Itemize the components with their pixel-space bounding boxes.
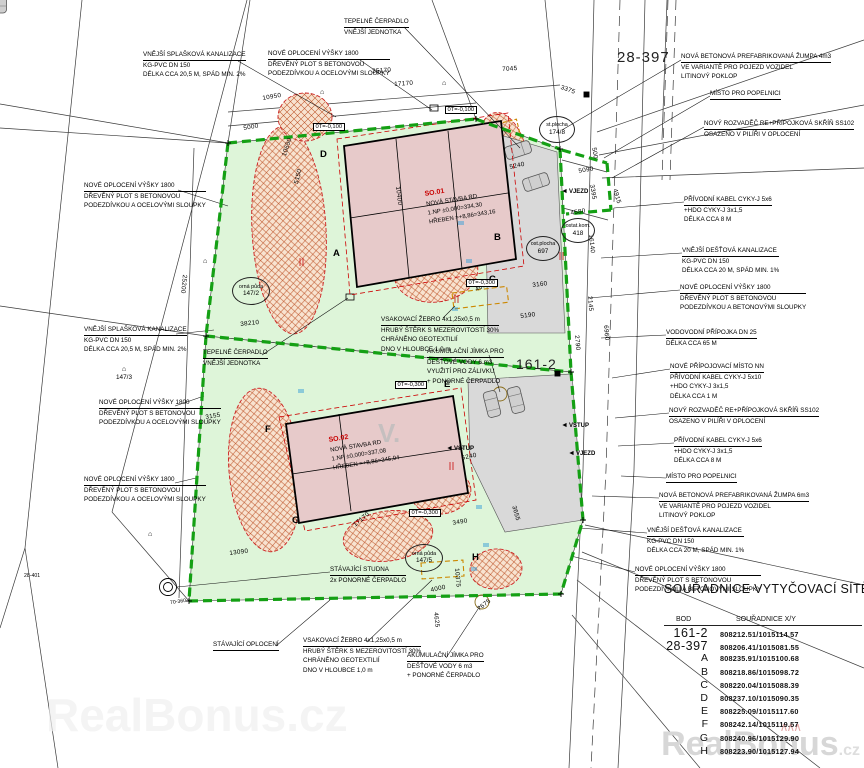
triangle-left-icon: ◄ [561, 188, 568, 195]
parcel-label-174-8: st.plocha174/8 [539, 116, 575, 143]
annotation-tepelne-cerpadlo-left: TEPELNÉ ČERPADLOVNĚJŠÍ JEDNOTKA [203, 348, 268, 368]
triangle-left-icon: ◄ [568, 450, 575, 457]
corner-letter-d: D [320, 149, 327, 160]
annotation-popelnice-2: MÍSTO PRO POPELNICI [666, 472, 737, 483]
house-mark-icon: ⌂ [320, 89, 324, 96]
dim-label: 6960 [602, 325, 610, 341]
house-mark-icon: ⌂ [148, 531, 152, 538]
annotation-vsakovaci-zebro-2: VSAKOVACÍ ŽEBRO 4x1,25x0,5 mHRUBÝ ŠTĚRK … [303, 636, 421, 675]
annotation-splaskova-left: VNĚJŠÍ SPLAŠKOVÁ KANALIZACEKG-PVC DN 150… [84, 325, 187, 355]
parcel-label-697: ost.plocha697 [526, 236, 560, 261]
elevation-box: 0T=-0,300 [395, 381, 427, 389]
annotation-destova-1: VNĚJŠÍ DEŠŤOVÁ KANALIZACEKG-PVC DN 150DÉ… [682, 246, 779, 276]
elevation-box: 0T=-0,300 [466, 279, 498, 287]
house-mark-icon: ⌂ [203, 258, 207, 265]
annotation-popelnice-top: MÍSTO PRO POPELNICI [710, 89, 781, 100]
table-row: D808237.10/1015090.35 [664, 692, 862, 705]
parcel-label-147-5: orná půda147/5 [405, 544, 443, 572]
annotation-oploceni-beton-1: NOVÉ OPLOCENÍ VÝŠKY 1800DŘEVĚNÝ PLOT S B… [680, 283, 806, 313]
elevation-box: 0T=-0,300 [409, 509, 441, 517]
annotation-jimka-1: AKUMULAČNÍ JÍMKA PRODEŠŤOVÉ VODY 6 m3VYU… [427, 347, 504, 386]
access-label-vjezd: ◄VJEZD [561, 188, 588, 195]
annotation-rozvadec-top: NOVÝ ROZVADĚČ RE+PŘÍPOJKOVÁ SKŘÍŇ SS102O… [704, 119, 854, 139]
table-row: H808223.90/1015127.94 [664, 745, 862, 758]
annotation-oploceni-top: NOVÉ OPLOCENÍ VÝŠKY 1800DŘEVĚNÝ PLOT S B… [268, 49, 390, 79]
corner-letter-a: A [333, 248, 340, 259]
corner-letter-b: B [494, 232, 501, 243]
dim-label: 4625 [432, 612, 441, 628]
annotation-stavajici-oploceni: STÁVAJÍCÍ OPLOCENÍ [213, 640, 279, 651]
annotation-oploceni-left-1: NOVÉ OPLOCENÍ VÝŠKY 1800DŘEVĚNÝ PLOT S B… [84, 181, 206, 211]
annotation-rozvadec-2: NOVÝ ROZVADĚČ RE+PŘÍPOJKOVÁ SKŘÍŇ SS102O… [669, 406, 819, 426]
dim-label: 2790 [573, 335, 581, 351]
access-label-vstup: ◄VSTUP [561, 422, 589, 429]
annotation-zumpa-2: NOVÁ BETONOVÁ PREFABRIKOVANÁ ŽUMPA 6m3VE… [659, 491, 809, 521]
elevation-box: 0T=-0,100 [313, 123, 345, 131]
annotation-oploceni-left-2: NOVÉ OPLOCENÍ VÝŠKY 1800DŘEVĚNÝ PLOT S B… [99, 398, 221, 428]
dim-label: 2145 [586, 296, 594, 312]
table-row: C808220.04/1015088.39 [664, 679, 862, 692]
corner-letter-e: E [444, 379, 450, 390]
annotation-vodovod: VODOVODNÍ PŘÍPOJKA DN 25DÉLKA CCA 65 M [666, 328, 757, 348]
dim-label: 17170 [394, 80, 413, 88]
annotation-jimka-2: AKUMULAČNÍ JÍMKA PRODEŠŤOVÉ VODY 6 m3+ P… [407, 651, 484, 681]
parcel-label-418: ostat.kom.418 [561, 218, 595, 243]
site-plan: RealBonus.cz [0, 0, 864, 768]
parcel-label-147-2: orná půda147/2 [232, 277, 270, 305]
corner-letter-f: F [265, 424, 271, 435]
coordinates-table: SOUŘADNICE VYTYČOVACÍ SÍTĚ BOD SOUŘADNIC… [664, 582, 862, 758]
corner-letter-g: G [292, 515, 299, 526]
annotation-kabel-2: PŘÍVODNÍ KABEL CYKY-J 5x6+HDO CYKY-J 3x1… [674, 436, 762, 466]
survey-point-161-2: 161-2 [516, 356, 557, 372]
triangle-left-icon: ◄ [561, 422, 568, 429]
house-mark-icon: ⌂ [442, 80, 446, 87]
coordinates-table-header: BOD SOUŘADNICE X/Y [664, 616, 862, 626]
table-row: 161-2808212.51/1015114.57 [664, 626, 862, 639]
corner-letter-h: H [472, 552, 479, 563]
house-mark-icon: ⌂ [122, 366, 126, 373]
annotation-kabel-1: PŘÍVODNÍ KABEL CYKY-J 5x6+HDO CYKY-J 3x1… [684, 195, 772, 225]
table-row: E808225.09/1015117.60 [664, 705, 862, 718]
coordinates-table-title: SOUŘADNICE VYTYČOVACÍ SÍTĚ [664, 582, 862, 596]
elevation-box: 0T=-0,100 [445, 106, 477, 114]
triangle-left-icon: ◄ [446, 445, 453, 452]
annotation-kanalizace-splaskova-top: VNĚJŠÍ SPLAŠKOVÁ KANALIZACEKG-PVC DN 150… [143, 50, 246, 80]
table-row: B808218.86/1015098.72 [664, 666, 862, 679]
annotation-tepelne-cerpadlo-top: TEPELNÉ ČERPADLOVNĚJŠÍ JEDNOTKA [344, 17, 409, 37]
annotation-destova-2: VNĚJŠÍ DEŠŤOVÁ KANALIZACEKG-PVC DN 150DÉ… [647, 526, 744, 556]
table-row: F808242.14/1015119.57 [664, 718, 862, 731]
table-row: G808240.96/1015129.90 [664, 732, 862, 745]
table-row: A808235.91/1015100.68 [664, 652, 862, 665]
access-label-vstup: ◄VSTUP [446, 445, 474, 452]
annotation-pripojovaci-misto: NOVÉ PŘÍPOJOVACÍ MÍSTO NNPŘÍVODNÍ KABEL … [670, 362, 764, 401]
annotation-oploceni-left-3: NOVÉ OPLOCENÍ VÝŠKY 1800DŘEVĚNÝ PLOT S B… [84, 475, 206, 505]
parcel-label-147-3: ⌂147/3 [116, 366, 132, 382]
survey-point-28-401: 28-401 [24, 573, 40, 579]
access-label-vjezd: ◄VJEZD [568, 450, 595, 457]
survey-point-28-397: 28-397 [617, 49, 670, 66]
table-row: 28-397808206.41/1015081.55 [664, 639, 862, 652]
dim-label: 7045 [502, 65, 518, 73]
annotation-zumpa-top: NOVÁ BETONOVÁ PREFABRIKOVANÁ ŽUMPA 4m3VE… [681, 52, 831, 82]
annotation-studna: STÁVAJÍCÍ STUDNA2x PONORNÉ ČERPADLO [330, 565, 406, 585]
